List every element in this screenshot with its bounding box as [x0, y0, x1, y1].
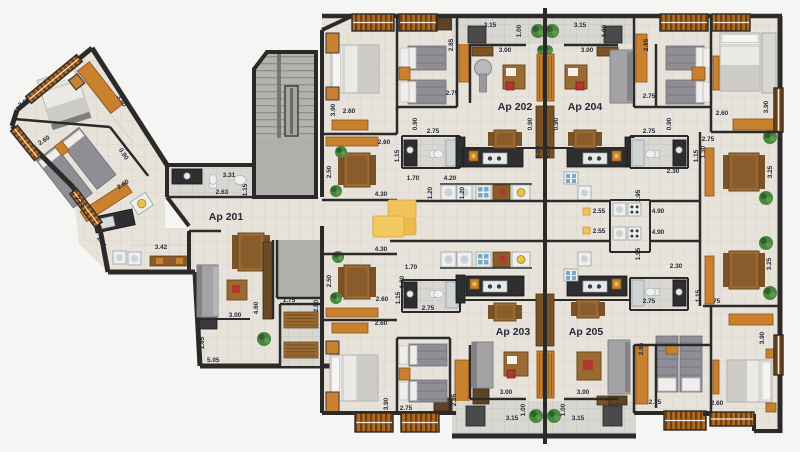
svg-text:2.30: 2.30 [667, 168, 680, 175]
svg-text:1.20: 1.20 [427, 186, 434, 199]
svg-text:1.00: 1.00 [601, 24, 608, 37]
svg-text:2.75: 2.75 [702, 136, 715, 143]
svg-text:4.60: 4.60 [253, 301, 260, 314]
svg-text:2.80: 2.80 [313, 299, 320, 312]
svg-text:2.60: 2.60 [343, 108, 356, 115]
svg-text:1.00: 1.00 [520, 403, 527, 416]
svg-text:3.90: 3.90 [383, 397, 390, 410]
svg-text:4.30: 4.30 [375, 191, 388, 198]
svg-text:1.30: 1.30 [399, 275, 406, 288]
svg-text:3.90: 3.90 [763, 100, 770, 113]
svg-text:Ap 201: Ap 201 [209, 211, 244, 223]
svg-text:3.00: 3.00 [577, 389, 590, 396]
svg-text:1.00: 1.00 [560, 403, 567, 416]
svg-text:2.30: 2.30 [670, 263, 683, 270]
svg-text:3.15: 3.15 [484, 22, 497, 29]
svg-text:3.00: 3.00 [500, 389, 513, 396]
svg-text:1.15: 1.15 [394, 149, 401, 162]
svg-text:2.75: 2.75 [643, 298, 656, 305]
svg-text:3.90: 3.90 [759, 331, 766, 344]
svg-text:2.60: 2.60 [378, 139, 391, 146]
svg-text:3.31: 3.31 [223, 172, 236, 179]
svg-text:2.85: 2.85 [638, 342, 645, 355]
svg-text:0.90: 0.90 [553, 117, 560, 130]
svg-text:4.90: 4.90 [652, 208, 665, 215]
svg-text:0.90: 0.90 [412, 117, 419, 130]
svg-text:2.55: 2.55 [593, 208, 606, 215]
svg-text:1.95: 1.95 [635, 247, 642, 260]
svg-text:Ap 203: Ap 203 [496, 326, 531, 338]
svg-text:3.00: 3.00 [229, 312, 242, 319]
svg-text:2.63: 2.63 [216, 189, 229, 196]
svg-text:2.75: 2.75 [643, 128, 656, 135]
svg-text:1.20: 1.20 [459, 186, 466, 199]
svg-text:3.90: 3.90 [330, 103, 337, 116]
svg-text:1.00: 1.00 [516, 24, 523, 37]
svg-text:2.75: 2.75 [643, 93, 656, 100]
svg-text:5.05: 5.05 [207, 357, 220, 364]
svg-text:1.65: 1.65 [199, 336, 206, 349]
svg-text:3.15: 3.15 [572, 415, 585, 422]
svg-text:2.50: 2.50 [326, 165, 333, 178]
svg-text:2.85: 2.85 [448, 38, 455, 51]
svg-text:1.70: 1.70 [407, 175, 420, 182]
svg-text:2.75: 2.75 [427, 128, 440, 135]
svg-text:3.15: 3.15 [574, 22, 587, 29]
svg-text:1.75: 1.75 [283, 297, 296, 304]
svg-text:4.90: 4.90 [652, 229, 665, 236]
svg-text:3.00: 3.00 [581, 47, 594, 54]
svg-text:0.90: 0.90 [527, 117, 534, 130]
svg-text:3.25: 3.25 [767, 165, 774, 178]
svg-text:3.25: 3.25 [766, 257, 773, 270]
svg-text:4.30: 4.30 [375, 246, 388, 253]
svg-text:Ap 202: Ap 202 [498, 101, 533, 113]
svg-text:2.60: 2.60 [711, 400, 724, 407]
svg-text:Ap 205: Ap 205 [569, 326, 604, 338]
svg-text:1.15: 1.15 [242, 183, 249, 196]
svg-text:3.15: 3.15 [506, 415, 519, 422]
svg-text:2.75: 2.75 [446, 90, 459, 97]
svg-text:4.20: 4.20 [444, 175, 457, 182]
svg-text:2.85: 2.85 [451, 393, 458, 406]
svg-text:2.60: 2.60 [376, 296, 389, 303]
svg-text:1.15: 1.15 [395, 291, 402, 304]
svg-text:Ap 204: Ap 204 [568, 101, 603, 113]
svg-text:2.85: 2.85 [643, 38, 650, 51]
svg-text:2.60: 2.60 [716, 110, 729, 117]
svg-text:1.70: 1.70 [405, 264, 418, 271]
svg-text:2.50: 2.50 [326, 274, 333, 287]
svg-text:6.00: 6.00 [535, 145, 542, 158]
svg-text:0.90: 0.90 [666, 117, 673, 130]
svg-text:2.75: 2.75 [649, 399, 662, 406]
svg-text:2.55: 2.55 [593, 228, 606, 235]
svg-text:2.75: 2.75 [422, 305, 435, 312]
svg-text:2.75: 2.75 [400, 405, 413, 412]
svg-text:3.00: 3.00 [499, 47, 512, 54]
svg-text:3.42: 3.42 [155, 244, 168, 251]
